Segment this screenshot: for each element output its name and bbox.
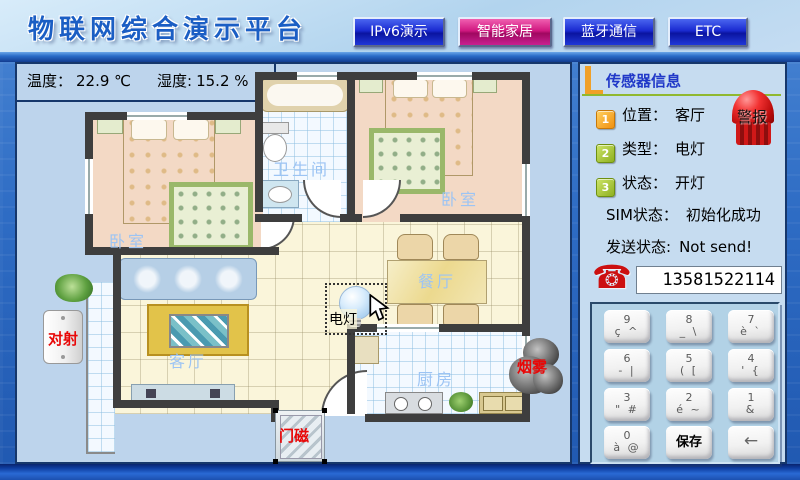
dining-table-icon: 餐厅 bbox=[387, 260, 487, 304]
smoke-sensor-label: 烟雾 bbox=[517, 356, 547, 377]
chair bbox=[443, 234, 479, 260]
window bbox=[297, 72, 337, 80]
window bbox=[417, 72, 472, 80]
bottom-bar bbox=[0, 464, 800, 480]
key-0[interactable]: 0à @ bbox=[604, 426, 650, 459]
door-magnet-sensor[interactable]: 门磁 bbox=[275, 410, 325, 462]
app-header: 物联网综合演示平台 IPv6演示 智能家居 蓝牙通信 ETC bbox=[0, 0, 800, 52]
tab-etc[interactable]: ETC bbox=[668, 17, 748, 47]
beam-sensor[interactable]: 对射 bbox=[43, 310, 83, 364]
info-row-type: 2类型：电灯 bbox=[596, 138, 705, 158]
pillow bbox=[393, 79, 428, 98]
location-value: 客厅 bbox=[675, 106, 705, 124]
key-5[interactable]: 5( [ bbox=[666, 349, 712, 382]
tab-bluetooth[interactable]: 蓝牙通信 bbox=[563, 17, 655, 47]
sofa-icon bbox=[119, 258, 257, 300]
sink-bowl bbox=[483, 396, 503, 411]
key-6[interactable]: 6- | bbox=[604, 349, 650, 382]
keypad: 9ç ^ 8_ \ 7è ` 6- | 5( [ 4' { 3" # 2é ~ … bbox=[590, 302, 780, 464]
phone-number-input[interactable] bbox=[636, 266, 782, 294]
bathtub-basin bbox=[267, 84, 343, 106]
sensor-info-panel: 传感器信息 警报 1位置：客厅 2类型：电灯 3状态：开灯 SIM状态：初始化成… bbox=[578, 62, 787, 464]
smoke-sensor[interactable]: 烟雾 bbox=[509, 338, 563, 396]
rug bbox=[169, 182, 253, 250]
wall bbox=[400, 214, 530, 222]
app-window: 物联网综合演示平台 IPv6演示 智能家居 蓝牙通信 ETC 温度：22.9 ℃… bbox=[0, 0, 800, 480]
temperature-value: 22.9 ℃ bbox=[76, 72, 131, 90]
state-label: 状态： bbox=[622, 174, 667, 192]
burner bbox=[418, 397, 432, 411]
send-status-label: 发送状态: bbox=[606, 238, 671, 256]
sink-basin bbox=[268, 186, 292, 203]
picture bbox=[169, 314, 229, 348]
room-label-living: 客厅 bbox=[169, 348, 207, 372]
title-corner-icon bbox=[585, 66, 603, 96]
sim-status-row: SIM状态：初始化成功 bbox=[606, 204, 761, 224]
header-divider bbox=[0, 52, 800, 62]
pillow bbox=[131, 119, 167, 139]
window bbox=[522, 164, 530, 216]
mouse-cursor bbox=[367, 294, 393, 322]
sim-status-label: SIM状态： bbox=[606, 206, 678, 224]
selection-handle bbox=[273, 408, 278, 413]
info-row-state: 3状态：开灯 bbox=[596, 172, 705, 192]
tv-stand-detail bbox=[146, 389, 156, 398]
room-label-bedroom-right: 卧室 bbox=[441, 186, 479, 210]
selection-handle bbox=[322, 459, 327, 464]
plant-icon bbox=[55, 274, 93, 302]
environment-readout: 温度：22.9 ℃湿度:15.2 % bbox=[17, 64, 276, 102]
phone-icon: ☎ bbox=[592, 258, 632, 296]
wall bbox=[113, 255, 121, 408]
toilet-tank bbox=[261, 122, 289, 134]
window bbox=[127, 112, 187, 120]
temperature-label: 温度： bbox=[27, 72, 72, 90]
key-4[interactable]: 4' { bbox=[728, 349, 774, 382]
room-label-kitchen: 厨房 bbox=[417, 366, 455, 390]
kitchen-cabinet-icon bbox=[351, 336, 379, 364]
sink-icon bbox=[259, 180, 299, 208]
sim-status-value: 初始化成功 bbox=[686, 206, 761, 224]
key-1[interactable]: 1& bbox=[728, 388, 774, 421]
humidity-value: 15.2 % bbox=[196, 72, 248, 90]
key-3[interactable]: 3" # bbox=[604, 388, 650, 421]
page-title: 物联网综合演示平台 bbox=[28, 9, 307, 46]
key-2[interactable]: 2é ~ bbox=[666, 388, 712, 421]
badge-2-icon: 2 bbox=[596, 144, 615, 163]
beam-sensor-dot bbox=[61, 355, 65, 359]
send-status-value: Not send! bbox=[679, 238, 752, 256]
stove-icon bbox=[385, 392, 443, 414]
tv-stand-detail bbox=[210, 389, 220, 398]
room-label-dining: 餐厅 bbox=[418, 272, 456, 291]
selection-handle bbox=[322, 408, 327, 413]
tab-ipv6-demo[interactable]: IPv6演示 bbox=[353, 17, 445, 47]
burner bbox=[394, 397, 408, 411]
beam-sensor-dot bbox=[61, 316, 65, 320]
chair bbox=[397, 234, 433, 260]
humidity-label: 湿度: bbox=[157, 72, 192, 90]
floorplan-panel: 温度：22.9 ℃湿度:15.2 % bbox=[15, 62, 572, 464]
type-label: 类型： bbox=[622, 140, 667, 158]
wall bbox=[365, 414, 530, 422]
state-value: 开灯 bbox=[675, 174, 705, 192]
wall bbox=[255, 72, 263, 212]
wall bbox=[347, 72, 355, 222]
window bbox=[85, 159, 93, 214]
bathtub-icon bbox=[261, 78, 349, 112]
door-magnet-label: 门磁 bbox=[279, 425, 309, 446]
floor-balcony bbox=[86, 282, 115, 454]
pillow bbox=[173, 119, 209, 139]
room-label-bedroom-left: 卧室 bbox=[109, 228, 147, 252]
tab-smart-home[interactable]: 智能家居 bbox=[458, 17, 552, 47]
badge-3-icon: 3 bbox=[596, 178, 615, 197]
badge-1-icon: 1 bbox=[596, 110, 615, 129]
send-status-row: 发送状态:Not send! bbox=[606, 236, 752, 256]
alarm-label: 警报 bbox=[737, 106, 767, 127]
save-button[interactable]: 保存 bbox=[666, 426, 712, 459]
selection-handle bbox=[273, 459, 278, 464]
beam-sensor-label: 对射 bbox=[44, 328, 82, 349]
backspace-button[interactable]: ← bbox=[728, 426, 774, 459]
wall bbox=[255, 214, 302, 222]
lamp-sensor-label: 电灯 bbox=[329, 309, 357, 329]
wall bbox=[113, 400, 279, 408]
dish-icon bbox=[449, 392, 473, 412]
type-value: 电灯 bbox=[675, 140, 705, 158]
location-label: 位置： bbox=[622, 106, 667, 124]
room-label-bathroom: 卫生间 bbox=[273, 156, 330, 180]
wall bbox=[347, 324, 355, 414]
wall bbox=[340, 214, 362, 222]
info-row-location: 1位置：客厅 bbox=[596, 104, 705, 124]
pillow bbox=[432, 79, 467, 98]
key-8[interactable]: 8_ \ bbox=[666, 310, 712, 343]
key-7[interactable]: 7è ` bbox=[728, 310, 774, 343]
sensor-panel-title: 传感器信息 bbox=[606, 70, 681, 91]
key-9[interactable]: 9ç ^ bbox=[604, 310, 650, 343]
